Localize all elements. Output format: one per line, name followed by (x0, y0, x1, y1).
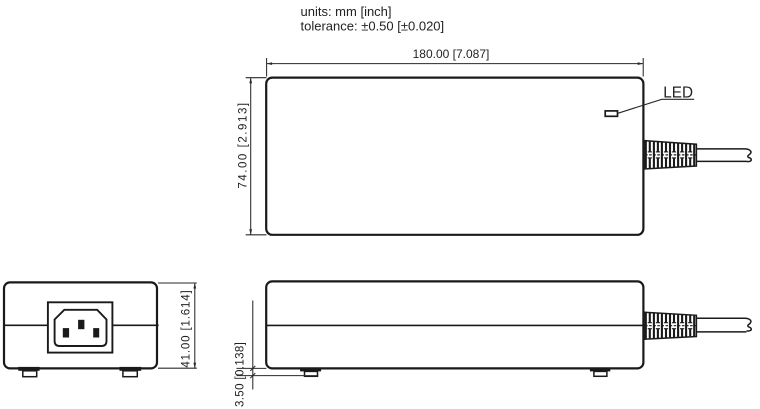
svg-text:3.50 [0.138]: 3.50 [0.138] (235, 342, 247, 407)
svg-text:41.00 [1.614]: 41.00 [1.614] (180, 289, 192, 367)
svg-text:LED: LED (663, 85, 693, 102)
svg-text:tolerance: ±0.50 [±0.020]: tolerance: ±0.50 [±0.020] (301, 18, 445, 33)
svg-text:180.00 [7.087]: 180.00 [7.087] (413, 47, 490, 61)
svg-text:74.00 [2.913]: 74.00 [2.913] (237, 101, 249, 188)
svg-text:units: mm [inch]: units: mm [inch] (301, 4, 392, 19)
